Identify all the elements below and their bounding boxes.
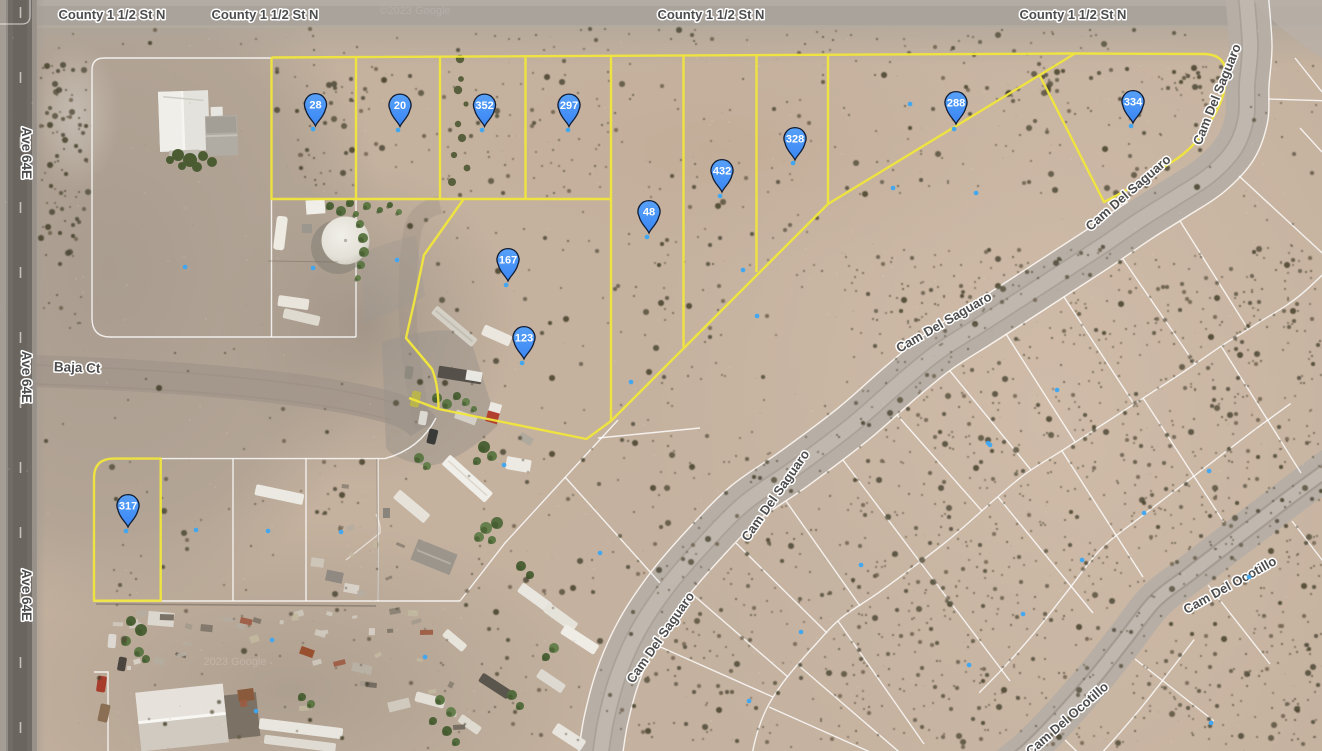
svg-text:28: 28 (309, 99, 321, 111)
svg-text:288: 288 (947, 97, 965, 109)
svg-text:County 1 1/2 St N: County 1 1/2 St N (658, 7, 765, 22)
svg-text:Ave 64E: Ave 64E (19, 351, 34, 403)
svg-text:Baja Ct: Baja Ct (54, 359, 102, 376)
svg-text:167: 167 (499, 254, 517, 266)
svg-text:Ave 64E: Ave 64E (19, 569, 34, 621)
svg-text:County 1 1/2 St N: County 1 1/2 St N (59, 7, 166, 22)
svg-text:48: 48 (643, 206, 655, 218)
svg-text:123: 123 (515, 332, 533, 344)
svg-text:432: 432 (713, 165, 731, 177)
svg-text:2023 Google: 2023 Google (204, 656, 267, 668)
svg-text:334: 334 (1124, 96, 1143, 108)
svg-text:352: 352 (475, 100, 493, 112)
svg-text:County 1 1/2 St N: County 1 1/2 St N (1020, 7, 1127, 22)
svg-text:297: 297 (560, 100, 578, 112)
svg-text:County 1 1/2 St N: County 1 1/2 St N (212, 7, 319, 22)
svg-text:317: 317 (119, 500, 137, 512)
svg-text:©2023 Google: ©2023 Google (379, 5, 450, 17)
svg-text:20: 20 (394, 100, 406, 112)
svg-text:328: 328 (786, 133, 804, 145)
svg-text:Ave 64E: Ave 64E (19, 127, 34, 179)
